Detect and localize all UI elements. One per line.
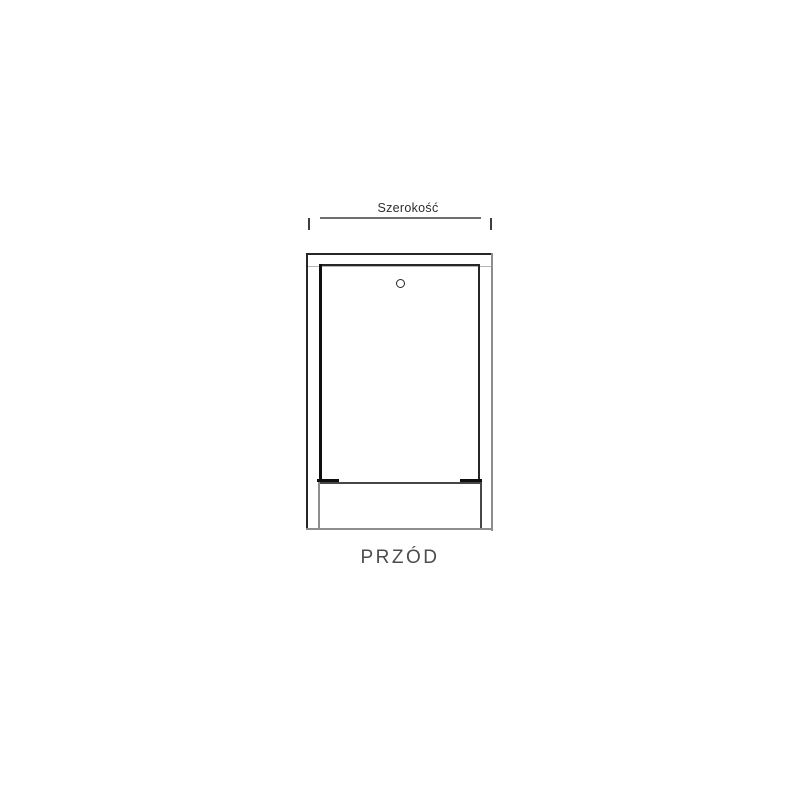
dimension-line (320, 217, 481, 219)
door-left-edge (319, 264, 322, 482)
cabinet-top-edge (306, 253, 493, 255)
dimension-tick-right (490, 218, 492, 230)
door-right-edge (478, 264, 481, 482)
plinth-panel-right-edge (480, 482, 482, 528)
plinth-panel-left-edge (318, 482, 320, 528)
door-top-edge (320, 264, 480, 266)
cabinet-bottom-edge (306, 528, 493, 530)
dimension-width-label: Szerokość (328, 201, 488, 215)
drawing-canvas: Szerokość PRZÓD (0, 0, 800, 800)
cabinet-right-edge (491, 253, 493, 531)
view-caption: PRZÓD (320, 547, 480, 569)
cabinet-left-edge (306, 253, 308, 530)
dimension-tick-left (308, 218, 310, 230)
lock-hole-icon (396, 279, 405, 288)
plinth-panel-top-edge (318, 482, 482, 484)
